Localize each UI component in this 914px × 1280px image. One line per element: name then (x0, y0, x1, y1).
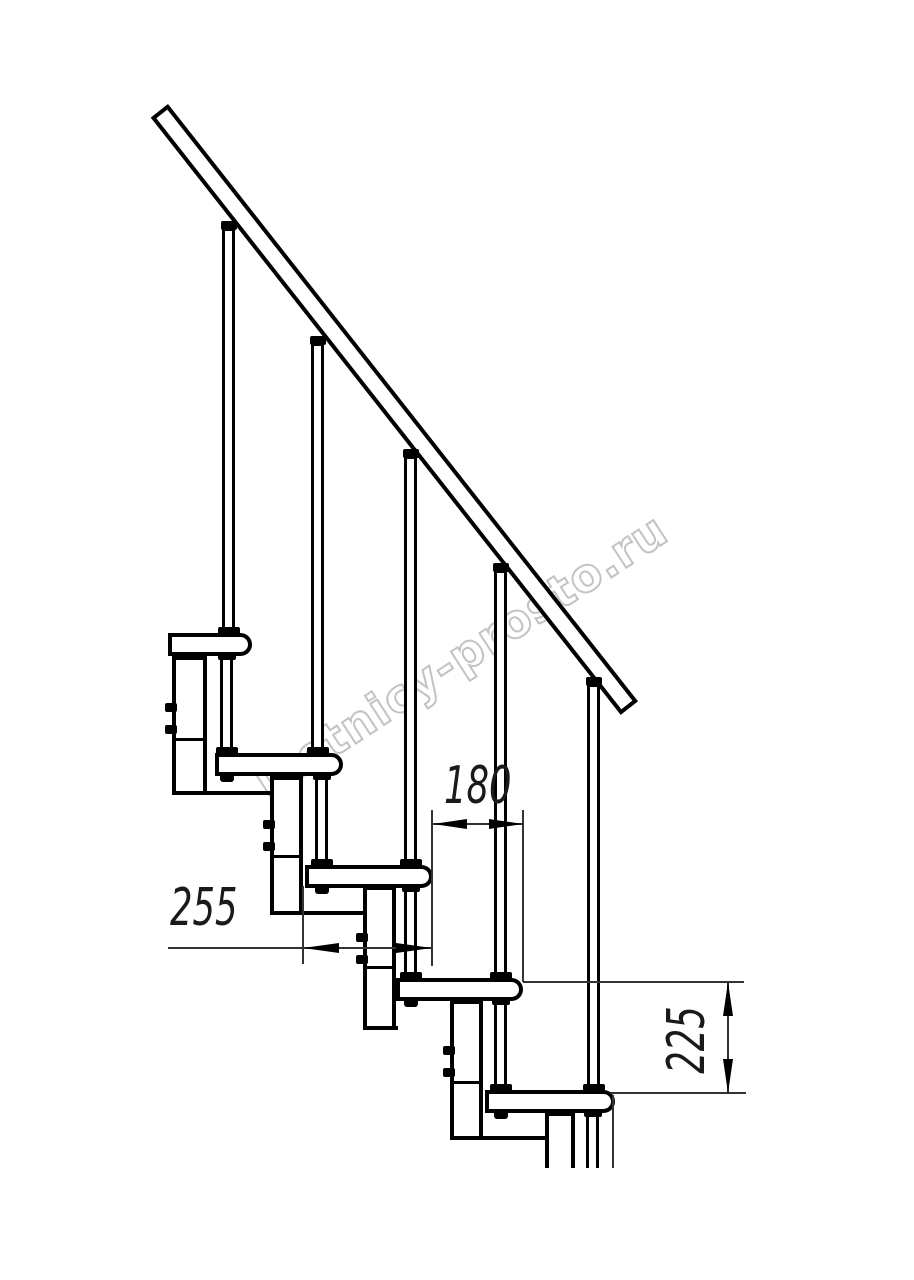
module-bolt (443, 1046, 455, 1055)
baluster-5 (587, 684, 600, 1094)
tread-1 (168, 633, 252, 656)
arrowhead-left (433, 819, 467, 829)
module-seam (270, 855, 303, 858)
base-collar (311, 859, 333, 867)
under-tread-collar (584, 1109, 602, 1117)
module-base-plate (450, 1136, 545, 1140)
support-tube-2 (315, 775, 328, 871)
base-collar (490, 1084, 512, 1092)
rail-collar (493, 563, 509, 572)
module-seam (172, 738, 207, 741)
base-collar (218, 627, 240, 635)
tread-bolt (315, 886, 329, 894)
support-tube-4 (494, 999, 507, 1096)
tread-bolt (404, 999, 418, 1007)
dimension-label-255: 255 (170, 882, 238, 934)
baluster-1 (222, 228, 235, 637)
support-tube-1 (220, 654, 233, 759)
module-bolt (263, 820, 275, 829)
base-collar (583, 1084, 605, 1092)
rail-collar (586, 677, 602, 686)
extension-line (523, 981, 744, 983)
arrowhead-left (303, 943, 339, 953)
tread-bolt (220, 774, 234, 782)
arrowhead-up (723, 982, 733, 1016)
under-tread-collar (492, 997, 510, 1005)
under-tread-collar (313, 772, 331, 780)
module-base-plate (270, 911, 365, 915)
base-collar (400, 859, 422, 867)
base-collar (400, 972, 422, 980)
arrowhead-down (723, 1059, 733, 1093)
rail-collar (221, 221, 237, 230)
baluster-3 (404, 456, 417, 869)
module-bolt (356, 933, 368, 942)
dimension-line-255 (168, 947, 431, 949)
support-tube-3 (404, 886, 417, 984)
dimension-label-180: 180 (444, 760, 512, 812)
tread-bolt (494, 1111, 508, 1119)
support-module-5 (545, 1112, 575, 1168)
base-collar (216, 747, 238, 755)
rail-collar (310, 336, 326, 345)
module-base-plate (363, 1026, 398, 1030)
under-tread-collar (402, 884, 420, 892)
dimension-label-225: 225 (661, 1006, 713, 1074)
arrowhead-right (396, 943, 432, 953)
support-tube-5 (586, 1112, 599, 1168)
module-bolt (263, 842, 275, 851)
base-collar (490, 972, 512, 980)
module-base-plate (172, 791, 270, 795)
under-tread-collar (218, 652, 236, 660)
rail-collar (403, 449, 419, 458)
extension-line (612, 1095, 614, 1168)
module-bolt (165, 725, 177, 734)
base-collar (307, 747, 329, 755)
baluster-2 (311, 343, 324, 757)
module-seam (363, 966, 396, 969)
module-bolt (165, 703, 177, 712)
staircase-technical-drawing: lestnicy-prosto.ru (0, 0, 914, 1280)
module-seam (450, 1081, 483, 1084)
module-bolt (443, 1068, 455, 1077)
support-module-1 (172, 656, 207, 795)
module-bolt (356, 955, 368, 964)
arrowhead-right (489, 819, 523, 829)
extension-line (522, 810, 524, 982)
